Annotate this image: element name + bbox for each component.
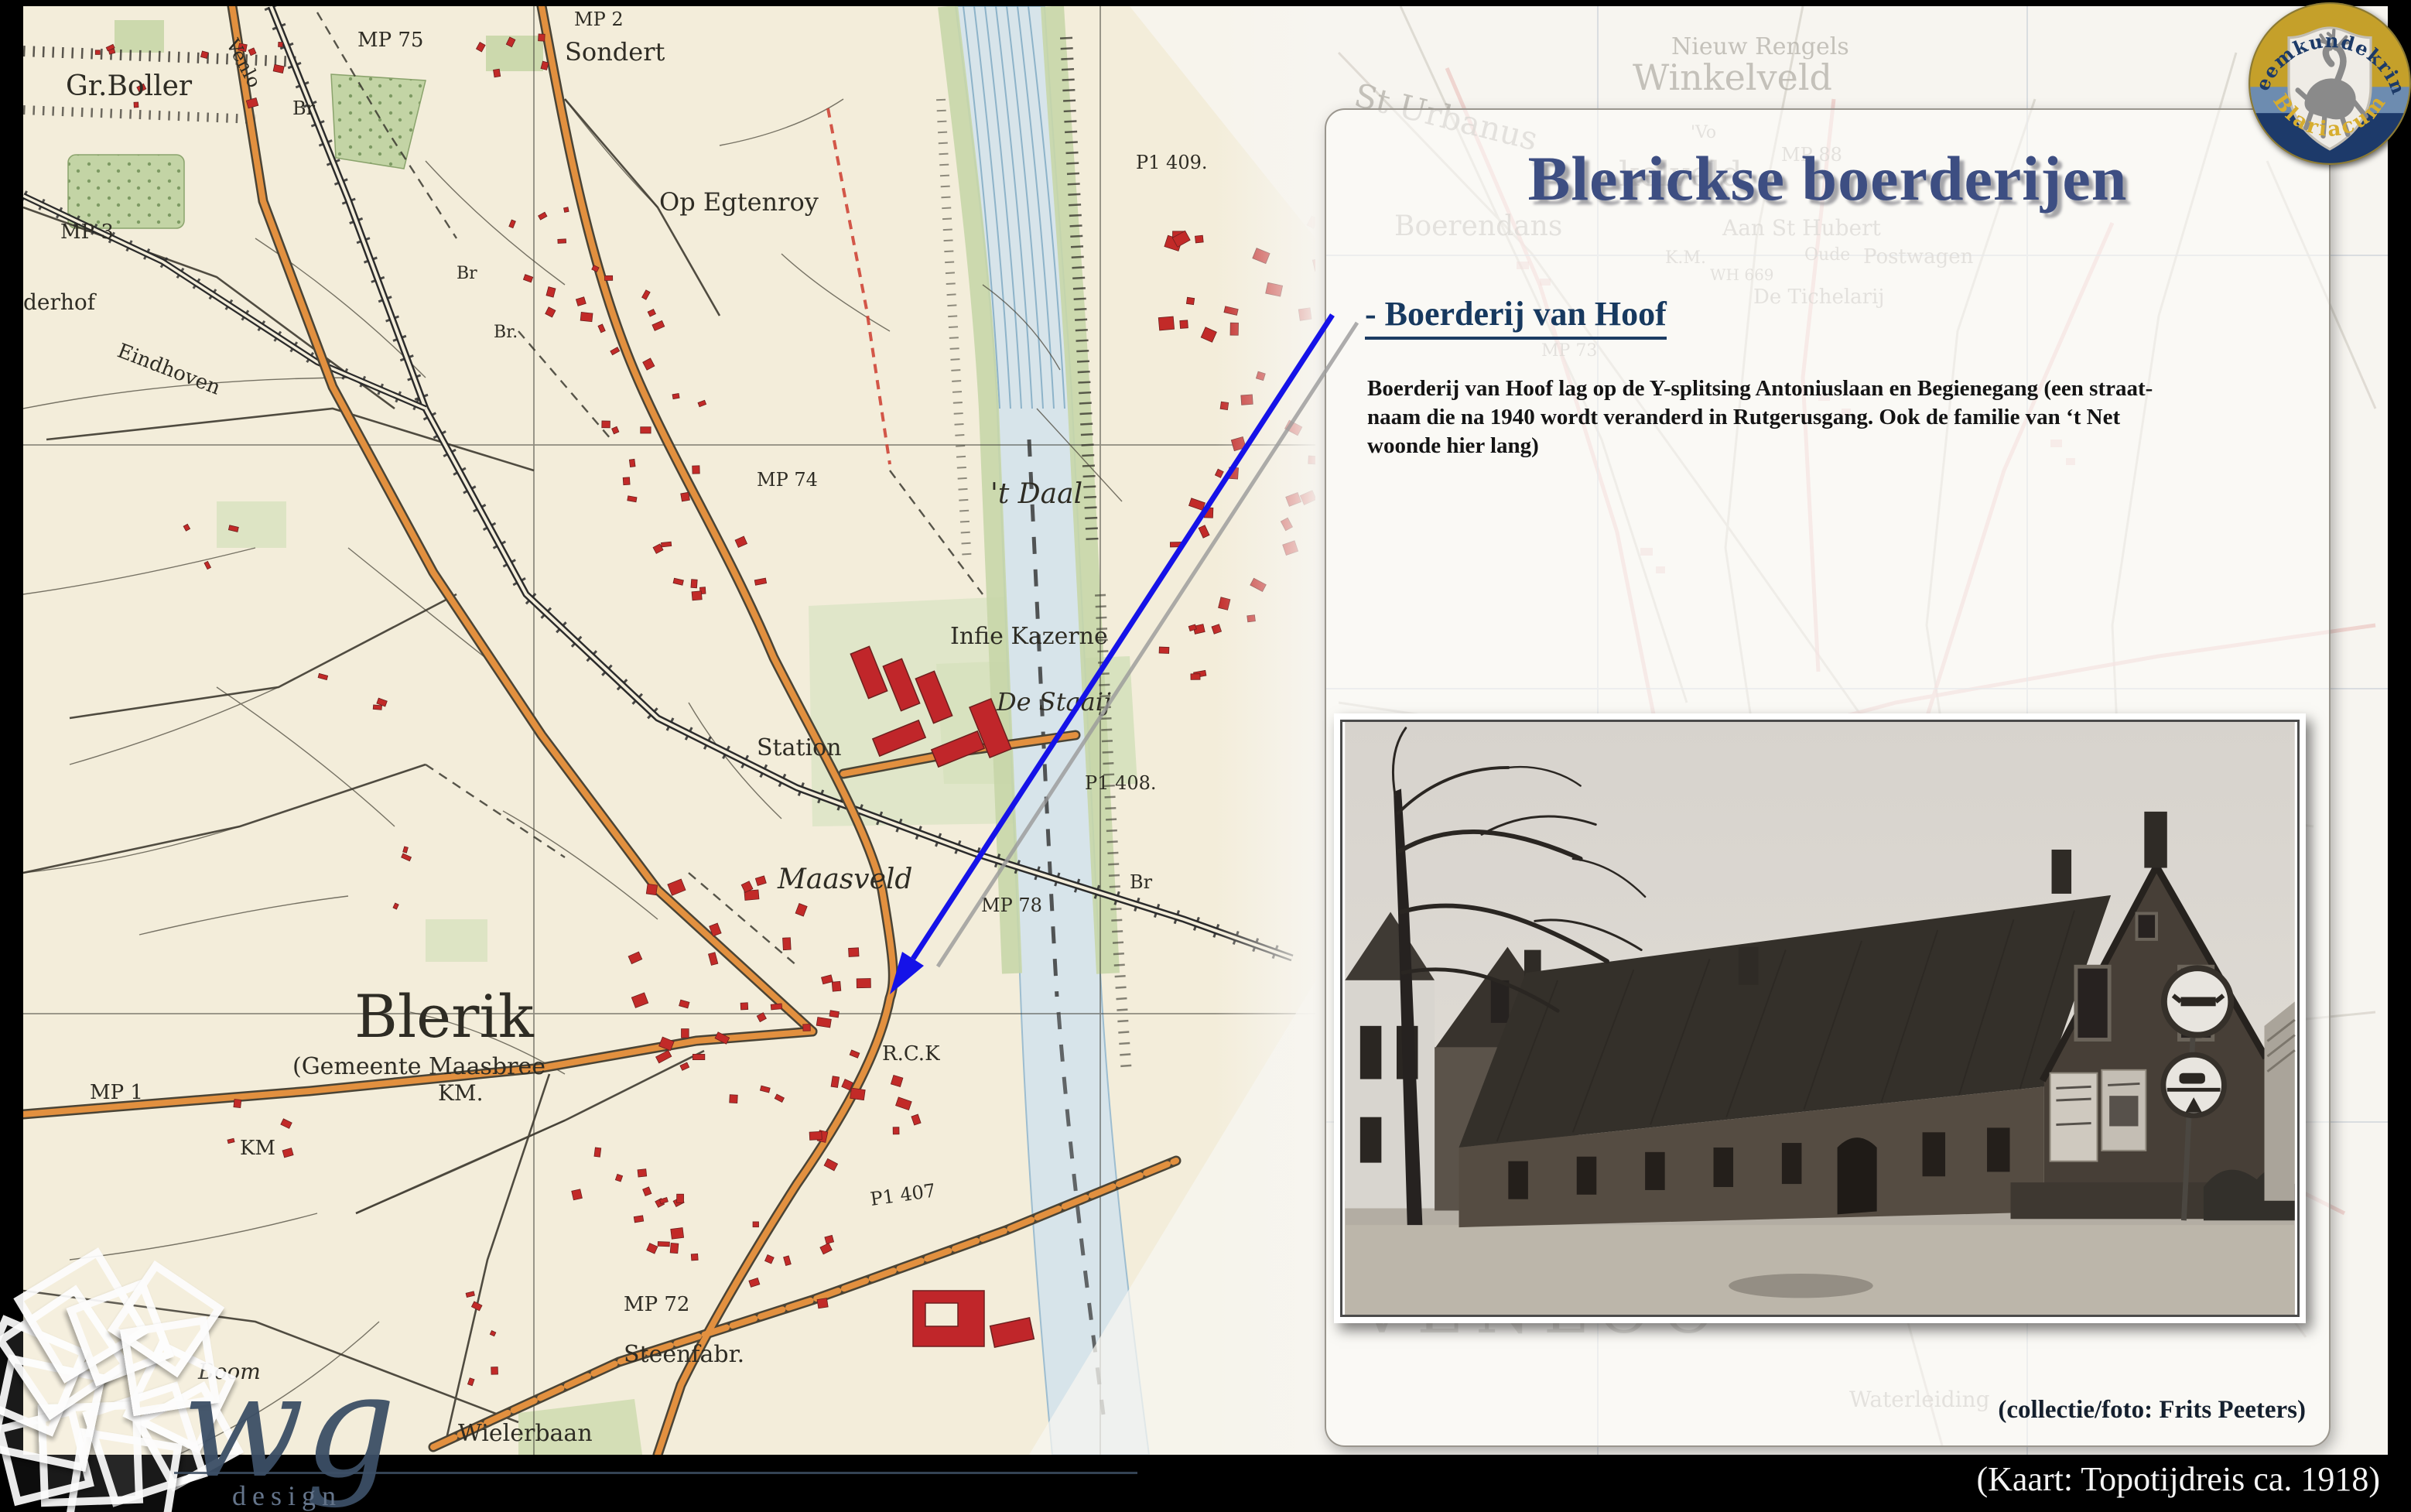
svg-text:Winkelveld: Winkelveld (1633, 56, 1832, 98)
svg-text:MP 74: MP 74 (757, 469, 818, 491)
map-source-caption: (Kaart: Topotijdreis ca. 1918) (1976, 1459, 2380, 1499)
svg-text:R.C.K: R.C.K (882, 1042, 940, 1066)
svg-text:Gr.Boller: Gr.Boller (66, 70, 193, 102)
svg-text:MP 3: MP 3 (60, 221, 114, 244)
svg-text:Infie Kazerne: Infie Kazerne (950, 623, 1108, 650)
svg-text:KM: KM (240, 1137, 275, 1160)
svg-text:P1 409.: P1 409. (1136, 152, 1207, 173)
svg-text:De Staaij: De Staaij (996, 687, 1111, 717)
svg-text:Station: Station (757, 734, 842, 761)
svg-text:KM.: KM. (438, 1080, 484, 1106)
svg-text:MP 2: MP 2 (574, 9, 624, 30)
slide-content: Nieuw RengelsWinkelveldMP 88kelveld'VoBo… (23, 6, 2388, 1455)
svg-text:Br: Br (457, 264, 477, 283)
section-body: Boerderij van Hoof lag op de Y-splitsing… (1367, 375, 2218, 460)
svg-text:Steenfabr.: Steenfabr. (624, 1341, 744, 1368)
svg-text:Br: Br (1130, 871, 1153, 893)
svg-text:(Gemeente Maasbree: (Gemeente Maasbree (292, 1053, 545, 1080)
watermark-flourish-line (174, 1472, 1137, 1474)
farmhouse-photo (1334, 713, 2306, 1323)
svg-text:Br: Br (292, 97, 316, 119)
svg-text:'t Daal: 't Daal (990, 478, 1082, 510)
svg-text:derhof: derhof (23, 289, 97, 315)
topographic-map: Gr.BollerBrMP 75MP 2SondertMP 3derhofVen… (23, 6, 1315, 1455)
svg-text:MP 75: MP 75 (357, 29, 423, 52)
svg-text:Maasveld: Maasveld (777, 864, 912, 895)
svg-text:MP 1: MP 1 (90, 1081, 143, 1104)
svg-text:Br.: Br. (494, 323, 518, 342)
svg-text:MP 78: MP 78 (981, 895, 1042, 916)
svg-text:MP 72: MP 72 (624, 1293, 689, 1316)
info-panel: Blerickse boerderijen - Boerderij van Ho… (1325, 108, 2331, 1447)
page-title: Blerickse boerderijen (1326, 142, 2329, 215)
photo-credit-caption: (collectie/foto: Frits Peeters) (1998, 1396, 2306, 1425)
watermark-subtext: design (232, 1480, 342, 1512)
heemkundekring-logo: Heemkundekring Blariacum (2248, 2, 2411, 166)
farmhouse-photo-image (1340, 720, 2300, 1317)
svg-text:Op Egtenroy: Op Egtenroy (659, 187, 819, 217)
svg-text:Sondert: Sondert (565, 37, 665, 67)
section-heading: - Boerderij van Hoof (1365, 294, 1667, 340)
svg-text:Blerik: Blerik (354, 982, 535, 1051)
svg-text:P1 408.: P1 408. (1085, 772, 1156, 794)
svg-text:Boom: Boom (197, 1359, 261, 1384)
svg-text:Wielerbaan: Wielerbaan (458, 1420, 593, 1447)
slide-root: Nieuw RengelsWinkelveldMP 88kelveld'VoBo… (0, 0, 2411, 1512)
